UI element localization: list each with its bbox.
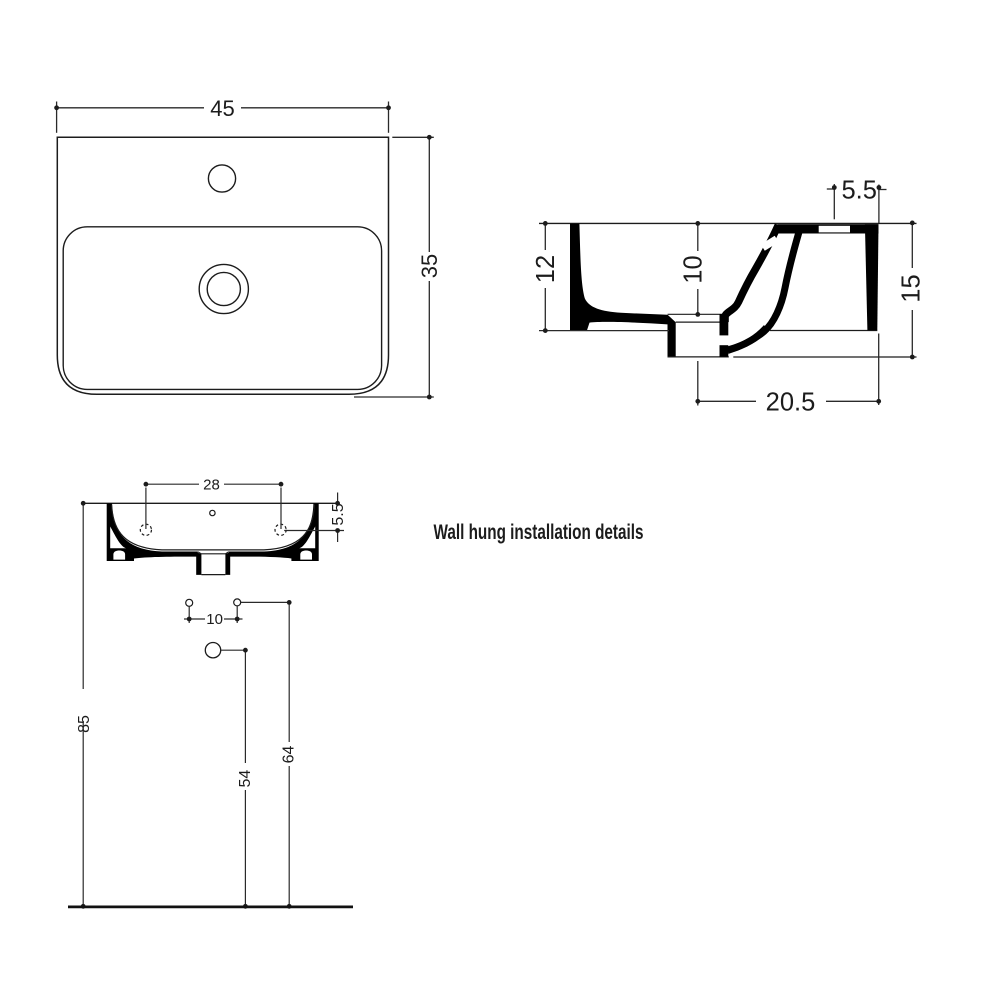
svg-text:5.5: 5.5 xyxy=(330,503,347,525)
svg-text:Wall hung installation details: Wall hung installation details xyxy=(434,521,644,544)
svg-text:5.5: 5.5 xyxy=(841,177,876,205)
svg-text:28: 28 xyxy=(203,477,220,494)
svg-text:15: 15 xyxy=(898,274,926,302)
svg-text:54: 54 xyxy=(237,770,254,788)
svg-text:35: 35 xyxy=(417,254,442,278)
svg-text:85: 85 xyxy=(76,715,93,733)
svg-text:12: 12 xyxy=(532,255,560,283)
svg-text:10: 10 xyxy=(206,611,223,628)
svg-text:45: 45 xyxy=(210,96,234,121)
svg-text:10: 10 xyxy=(680,255,708,283)
svg-text:64: 64 xyxy=(281,746,298,764)
svg-text:20.5: 20.5 xyxy=(766,389,816,417)
